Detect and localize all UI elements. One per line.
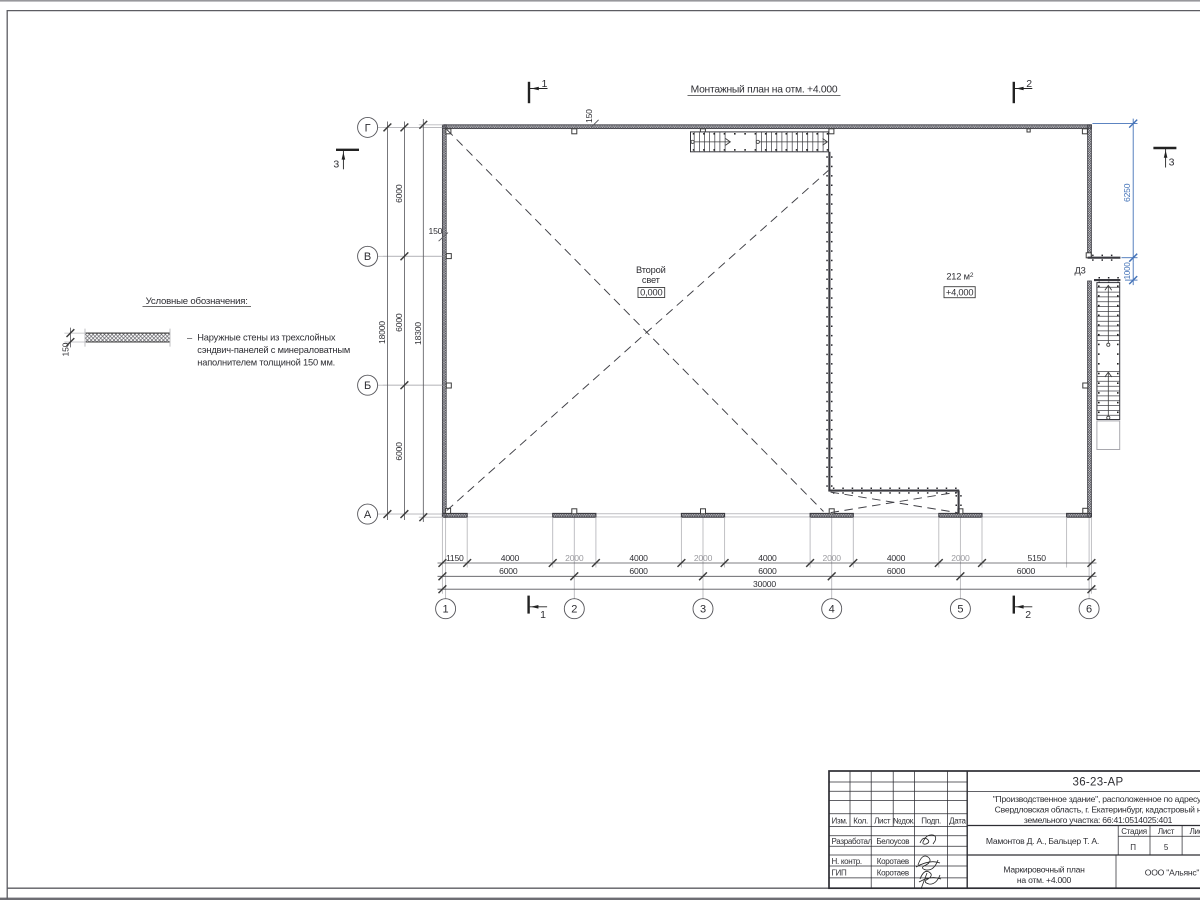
svg-text:6000: 6000 xyxy=(1017,566,1036,576)
svg-text:1150: 1150 xyxy=(446,553,464,563)
svg-text:Условные обозначения:: Условные обозначения: xyxy=(146,296,248,307)
svg-text:"Производственное здание", рас: "Производственное здание", расположенное… xyxy=(993,794,1200,804)
svg-text:4000: 4000 xyxy=(758,553,777,563)
svg-text:0,000: 0,000 xyxy=(640,288,662,298)
svg-text:Лист: Лист xyxy=(1158,827,1175,836)
svg-text:Стадия: Стадия xyxy=(1121,827,1146,836)
svg-text:6: 6 xyxy=(1086,604,1092,616)
svg-text:6000: 6000 xyxy=(629,566,648,576)
svg-text:150: 150 xyxy=(60,342,70,356)
svg-text:ООО "Альянс": ООО "Альянс" xyxy=(1145,868,1200,878)
svg-text:Кол.: Кол. xyxy=(853,816,868,825)
svg-text:Г: Г xyxy=(365,122,371,134)
svg-text:Подп.: Подп. xyxy=(921,816,941,825)
svg-text:2: 2 xyxy=(1026,78,1032,90)
svg-text:земельного участка: 66:41:0514: земельного участка: 66:41:0514025:401 xyxy=(1024,815,1173,825)
svg-text:Изм.: Изм. xyxy=(832,816,848,825)
svg-text:Второй: Второй xyxy=(636,265,666,275)
svg-text:6250: 6250 xyxy=(1122,183,1132,202)
svg-text:4000: 4000 xyxy=(629,553,648,563)
svg-text:Б: Б xyxy=(364,380,371,392)
svg-text:6000: 6000 xyxy=(394,313,404,332)
svg-text:2000: 2000 xyxy=(565,553,584,563)
svg-text:30000: 30000 xyxy=(753,579,776,589)
svg-text:В: В xyxy=(364,251,371,263)
svg-text:4: 4 xyxy=(829,604,835,616)
svg-text:4000: 4000 xyxy=(887,553,906,563)
svg-text:Н. контр.: Н. контр. xyxy=(832,857,862,866)
svg-text:5150: 5150 xyxy=(1028,553,1047,563)
svg-text:212 м2: 212 м2 xyxy=(946,272,974,282)
svg-text:150: 150 xyxy=(429,226,443,236)
svg-text:Лис: Лис xyxy=(1190,827,1200,836)
svg-text:2000: 2000 xyxy=(951,553,970,563)
svg-text:+4,000: +4,000 xyxy=(946,288,974,298)
svg-text:Разработал: Разработал xyxy=(832,837,873,846)
svg-text:6000: 6000 xyxy=(758,566,777,576)
svg-text:5: 5 xyxy=(957,604,963,616)
svg-text:Мамонтов Д. А., Бальцер Т. А.: Мамонтов Д. А., Бальцер Т. А. xyxy=(986,836,1099,846)
svg-text:Коротаев: Коротаев xyxy=(877,869,909,878)
svg-text:свет: свет xyxy=(642,275,661,285)
svg-text:6000: 6000 xyxy=(394,184,404,203)
svg-text:2000: 2000 xyxy=(823,553,842,563)
svg-text:36-23-АР: 36-23-АР xyxy=(1073,776,1124,788)
svg-text:Дата: Дата xyxy=(949,816,966,825)
svg-text:2000: 2000 xyxy=(694,553,713,563)
svg-text:3: 3 xyxy=(333,158,339,170)
svg-text:Д3: Д3 xyxy=(1075,266,1086,276)
svg-text:1: 1 xyxy=(542,78,548,90)
svg-text:3: 3 xyxy=(1169,157,1175,169)
svg-text:наполнителем толщиной 150 мм.: наполнителем толщиной 150 мм. xyxy=(197,358,335,368)
svg-text:3: 3 xyxy=(700,604,706,616)
svg-text:1: 1 xyxy=(443,604,449,616)
svg-text:Наружные стены из трехслойных: Наружные стены из трехслойных xyxy=(197,332,336,342)
svg-text:1: 1 xyxy=(540,609,546,621)
svg-text:Лист: Лист xyxy=(874,816,891,825)
svg-text:6000: 6000 xyxy=(394,442,404,461)
svg-text:Маркировочный план: Маркировочный план xyxy=(1003,865,1085,875)
svg-text:ГИП: ГИП xyxy=(832,869,847,878)
svg-text:Белоусов: Белоусов xyxy=(876,837,909,846)
svg-text:6000: 6000 xyxy=(887,566,906,576)
svg-text:на отм. +4.000: на отм. +4.000 xyxy=(1017,875,1072,885)
svg-text:Коротаев: Коротаев xyxy=(877,857,909,866)
svg-text:4000: 4000 xyxy=(501,553,520,563)
svg-text:Монтажный план на отм. +4.000: Монтажный план на отм. +4.000 xyxy=(691,85,838,96)
svg-text:2: 2 xyxy=(1025,609,1031,621)
svg-text:1000: 1000 xyxy=(1123,262,1132,280)
svg-text:А: А xyxy=(364,509,372,521)
svg-text:П: П xyxy=(1130,843,1136,852)
svg-text:18000: 18000 xyxy=(377,321,387,344)
svg-text:18300: 18300 xyxy=(413,322,423,345)
svg-text:6000: 6000 xyxy=(499,566,518,576)
svg-text:150: 150 xyxy=(584,109,594,123)
svg-text:сэндвич-панелей с минераловатн: сэндвич-панелей с минераловатным xyxy=(197,345,350,355)
svg-text:Свердловская область, г. Екате: Свердловская область, г. Екатеринбург, к… xyxy=(995,804,1200,814)
svg-text:№док.: №док. xyxy=(893,816,915,825)
svg-text:2: 2 xyxy=(571,604,577,616)
